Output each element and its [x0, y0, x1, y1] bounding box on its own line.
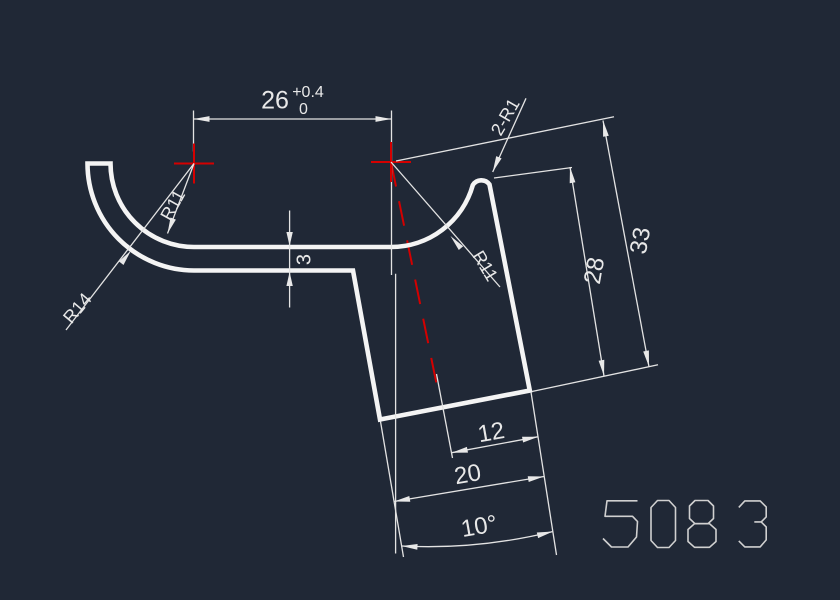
svg-text:0: 0 — [299, 101, 308, 118]
svg-text:R14: R14 — [59, 289, 96, 327]
svg-text:28: 28 — [579, 255, 610, 286]
svg-text:20: 20 — [452, 459, 483, 490]
svg-text:10°: 10° — [459, 510, 499, 543]
svg-text:3: 3 — [294, 254, 316, 265]
svg-text:33: 33 — [625, 225, 656, 256]
svg-text:12: 12 — [476, 417, 507, 448]
svg-text:26: 26 — [261, 87, 289, 115]
svg-text:R11: R11 — [468, 247, 501, 284]
svg-text:+0.4: +0.4 — [292, 84, 324, 101]
